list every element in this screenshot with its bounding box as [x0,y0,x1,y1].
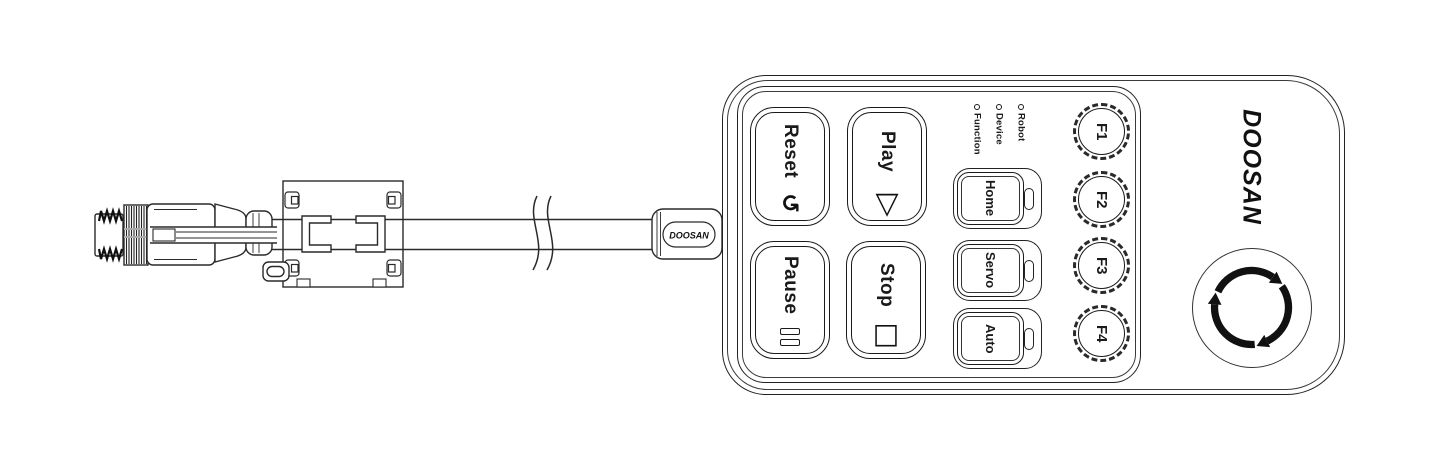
servo-button-label: Servo [983,252,998,288]
f1-button[interactable]: F1 [1073,103,1130,160]
stop-button-label: Stop [875,263,897,307]
pause-button[interactable]: Pause [750,241,830,359]
m12-connector [95,204,277,265]
auto-button[interactable]: Auto [953,308,1042,369]
auto-led-slot [1024,328,1034,350]
f4-button[interactable]: F4 [1073,305,1130,362]
pause-bars-icon [780,328,800,346]
led-circle-icon [1018,104,1024,110]
status-led-function: Function [970,104,984,155]
pause-button-label: Pause [779,256,801,314]
status-led-device: Device [992,104,1006,145]
rotate-to-release-arrows-icon [1193,249,1310,366]
status-led-robot: Robot [1014,104,1028,141]
f2-button[interactable]: F2 [1073,171,1130,228]
cable-break-icon [533,196,553,270]
strain-relief-boot: DOOSAN [652,209,722,259]
f3-button[interactable]: F3 [1073,237,1130,294]
reset-button-label: Reset [779,124,801,178]
doosan-pendant-diagram: DOOSAN Reset ↺ Play ▽ Pause Stop □ Robot… [0,0,1436,474]
reset-arrow-icon: ↺ [778,193,802,213]
play-button-label: Play [876,131,898,172]
servo-button[interactable]: Servo [953,240,1042,301]
auto-button-label: Auto [983,324,998,354]
play-triangle-icon: ▽ [875,189,898,219]
led-circle-icon [996,104,1002,110]
ferrite-clamp [263,181,403,287]
led-circle-icon [974,104,980,110]
home-button[interactable]: Home [953,168,1042,229]
reset-button[interactable]: Reset ↺ [750,107,830,226]
knurled-ring-icon [124,205,148,265]
home-led-slot [1024,188,1034,210]
cable-brand-label: DOOSAN [669,231,709,241]
play-button[interactable]: Play ▽ [847,107,927,226]
stop-square-icon: □ [873,320,899,348]
home-button-label: Home [983,180,998,216]
emergency-stop-button[interactable] [1192,248,1312,368]
servo-led-slot [1024,260,1034,282]
stop-button[interactable]: Stop □ [846,241,926,359]
